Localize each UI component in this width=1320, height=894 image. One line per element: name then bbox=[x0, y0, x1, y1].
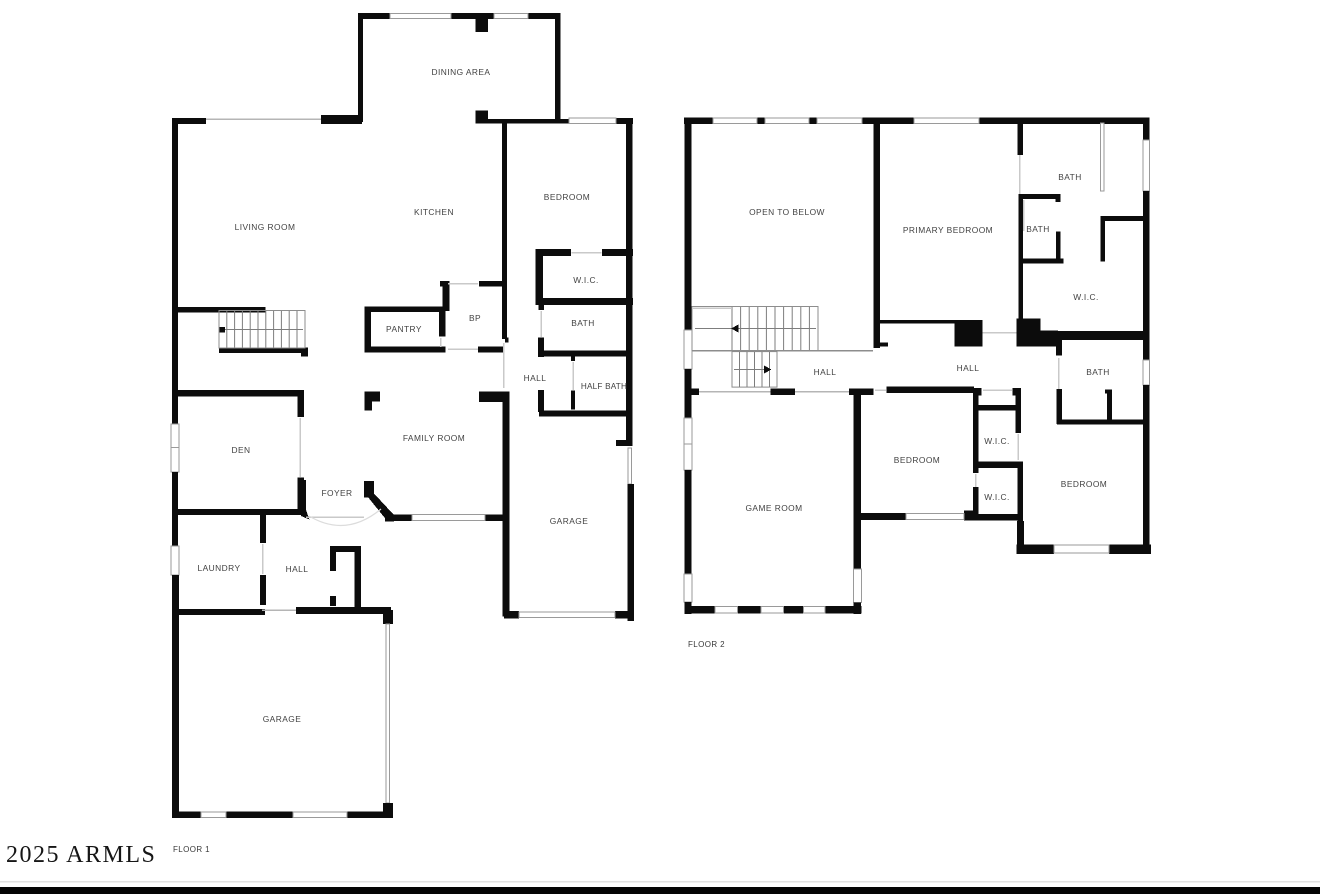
svg-text:GAME ROOM: GAME ROOM bbox=[745, 503, 802, 513]
svg-text:FOYER: FOYER bbox=[321, 488, 352, 498]
svg-text:PRIMARY BEDROOM: PRIMARY BEDROOM bbox=[903, 225, 993, 235]
svg-text:BATH: BATH bbox=[1026, 224, 1050, 234]
svg-text:FAMILY ROOM: FAMILY ROOM bbox=[403, 433, 465, 443]
svg-text:BEDROOM: BEDROOM bbox=[894, 455, 940, 465]
svg-text:BATH: BATH bbox=[1086, 367, 1110, 377]
svg-text:W.I.C.: W.I.C. bbox=[1073, 292, 1099, 302]
svg-text:HALL: HALL bbox=[814, 367, 837, 377]
svg-text:HALL: HALL bbox=[524, 373, 547, 383]
svg-text:2025 ARMLS: 2025 ARMLS bbox=[6, 842, 156, 868]
svg-text:W.I.C.: W.I.C. bbox=[984, 436, 1010, 446]
svg-text:W.I.C.: W.I.C. bbox=[573, 275, 599, 285]
svg-text:LAUNDRY: LAUNDRY bbox=[197, 563, 240, 573]
svg-text:BATH: BATH bbox=[571, 318, 595, 328]
svg-text:DINING AREA: DINING AREA bbox=[432, 67, 491, 77]
svg-text:W.I.C.: W.I.C. bbox=[984, 492, 1010, 502]
svg-text:OPEN TO BELOW: OPEN TO BELOW bbox=[749, 207, 825, 217]
svg-text:HALL: HALL bbox=[957, 363, 980, 373]
svg-text:BP: BP bbox=[469, 313, 481, 323]
svg-text:GARAGE: GARAGE bbox=[550, 516, 589, 526]
svg-text:HALF BATH: HALF BATH bbox=[581, 382, 627, 391]
svg-text:GARAGE: GARAGE bbox=[263, 714, 302, 724]
svg-text:BATH: BATH bbox=[1058, 172, 1082, 182]
svg-text:DEN: DEN bbox=[231, 445, 250, 455]
svg-text:HALL: HALL bbox=[286, 564, 309, 574]
svg-text:LIVING ROOM: LIVING ROOM bbox=[235, 222, 296, 232]
svg-text:BEDROOM: BEDROOM bbox=[1061, 479, 1107, 489]
svg-text:FLOOR 1: FLOOR 1 bbox=[173, 845, 210, 854]
svg-text:PANTRY: PANTRY bbox=[386, 324, 422, 334]
svg-text:BEDROOM: BEDROOM bbox=[544, 192, 590, 202]
svg-text:KITCHEN: KITCHEN bbox=[414, 207, 454, 217]
svg-text:FLOOR 2: FLOOR 2 bbox=[688, 640, 725, 649]
